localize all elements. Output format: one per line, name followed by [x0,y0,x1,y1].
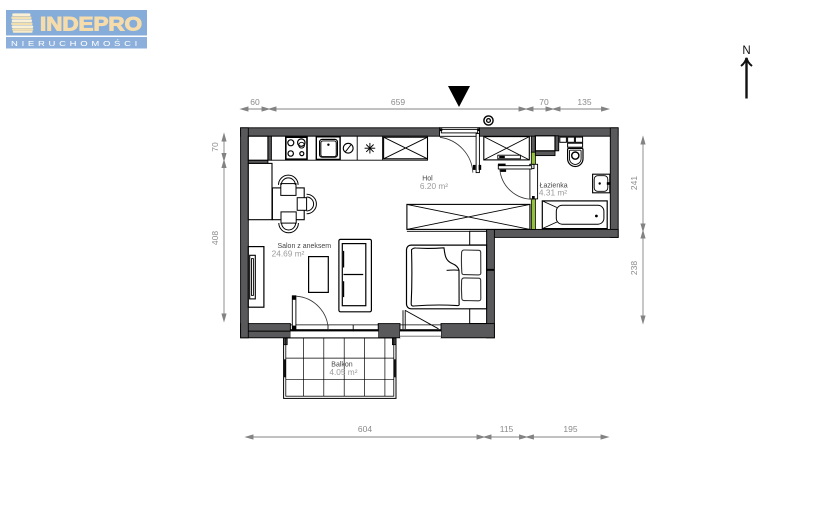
svg-text:60: 60 [250,97,260,107]
svg-text:70: 70 [210,142,220,152]
svg-text:408: 408 [210,231,220,245]
svg-text:4.31 m²: 4.31 m² [539,187,567,197]
svg-text:NIERUCHOMOŚCI: NIERUCHOMOŚCI [11,39,141,48]
svg-text:115: 115 [500,424,514,434]
svg-text:6.20 m²: 6.20 m² [420,181,448,191]
svg-text:4.05 m²: 4.05 m² [329,367,357,377]
svg-text:238: 238 [629,261,639,275]
svg-text:24.69 m²: 24.69 m² [272,249,305,259]
svg-text:70: 70 [539,97,549,107]
svg-text:241: 241 [629,176,639,190]
svg-text:INDEPRO: INDEPRO [40,14,142,35]
svg-text:195: 195 [563,424,577,434]
svg-text:604: 604 [358,424,372,434]
svg-text:659: 659 [391,97,405,107]
svg-text:N: N [742,45,750,57]
svg-text:135: 135 [577,97,591,107]
